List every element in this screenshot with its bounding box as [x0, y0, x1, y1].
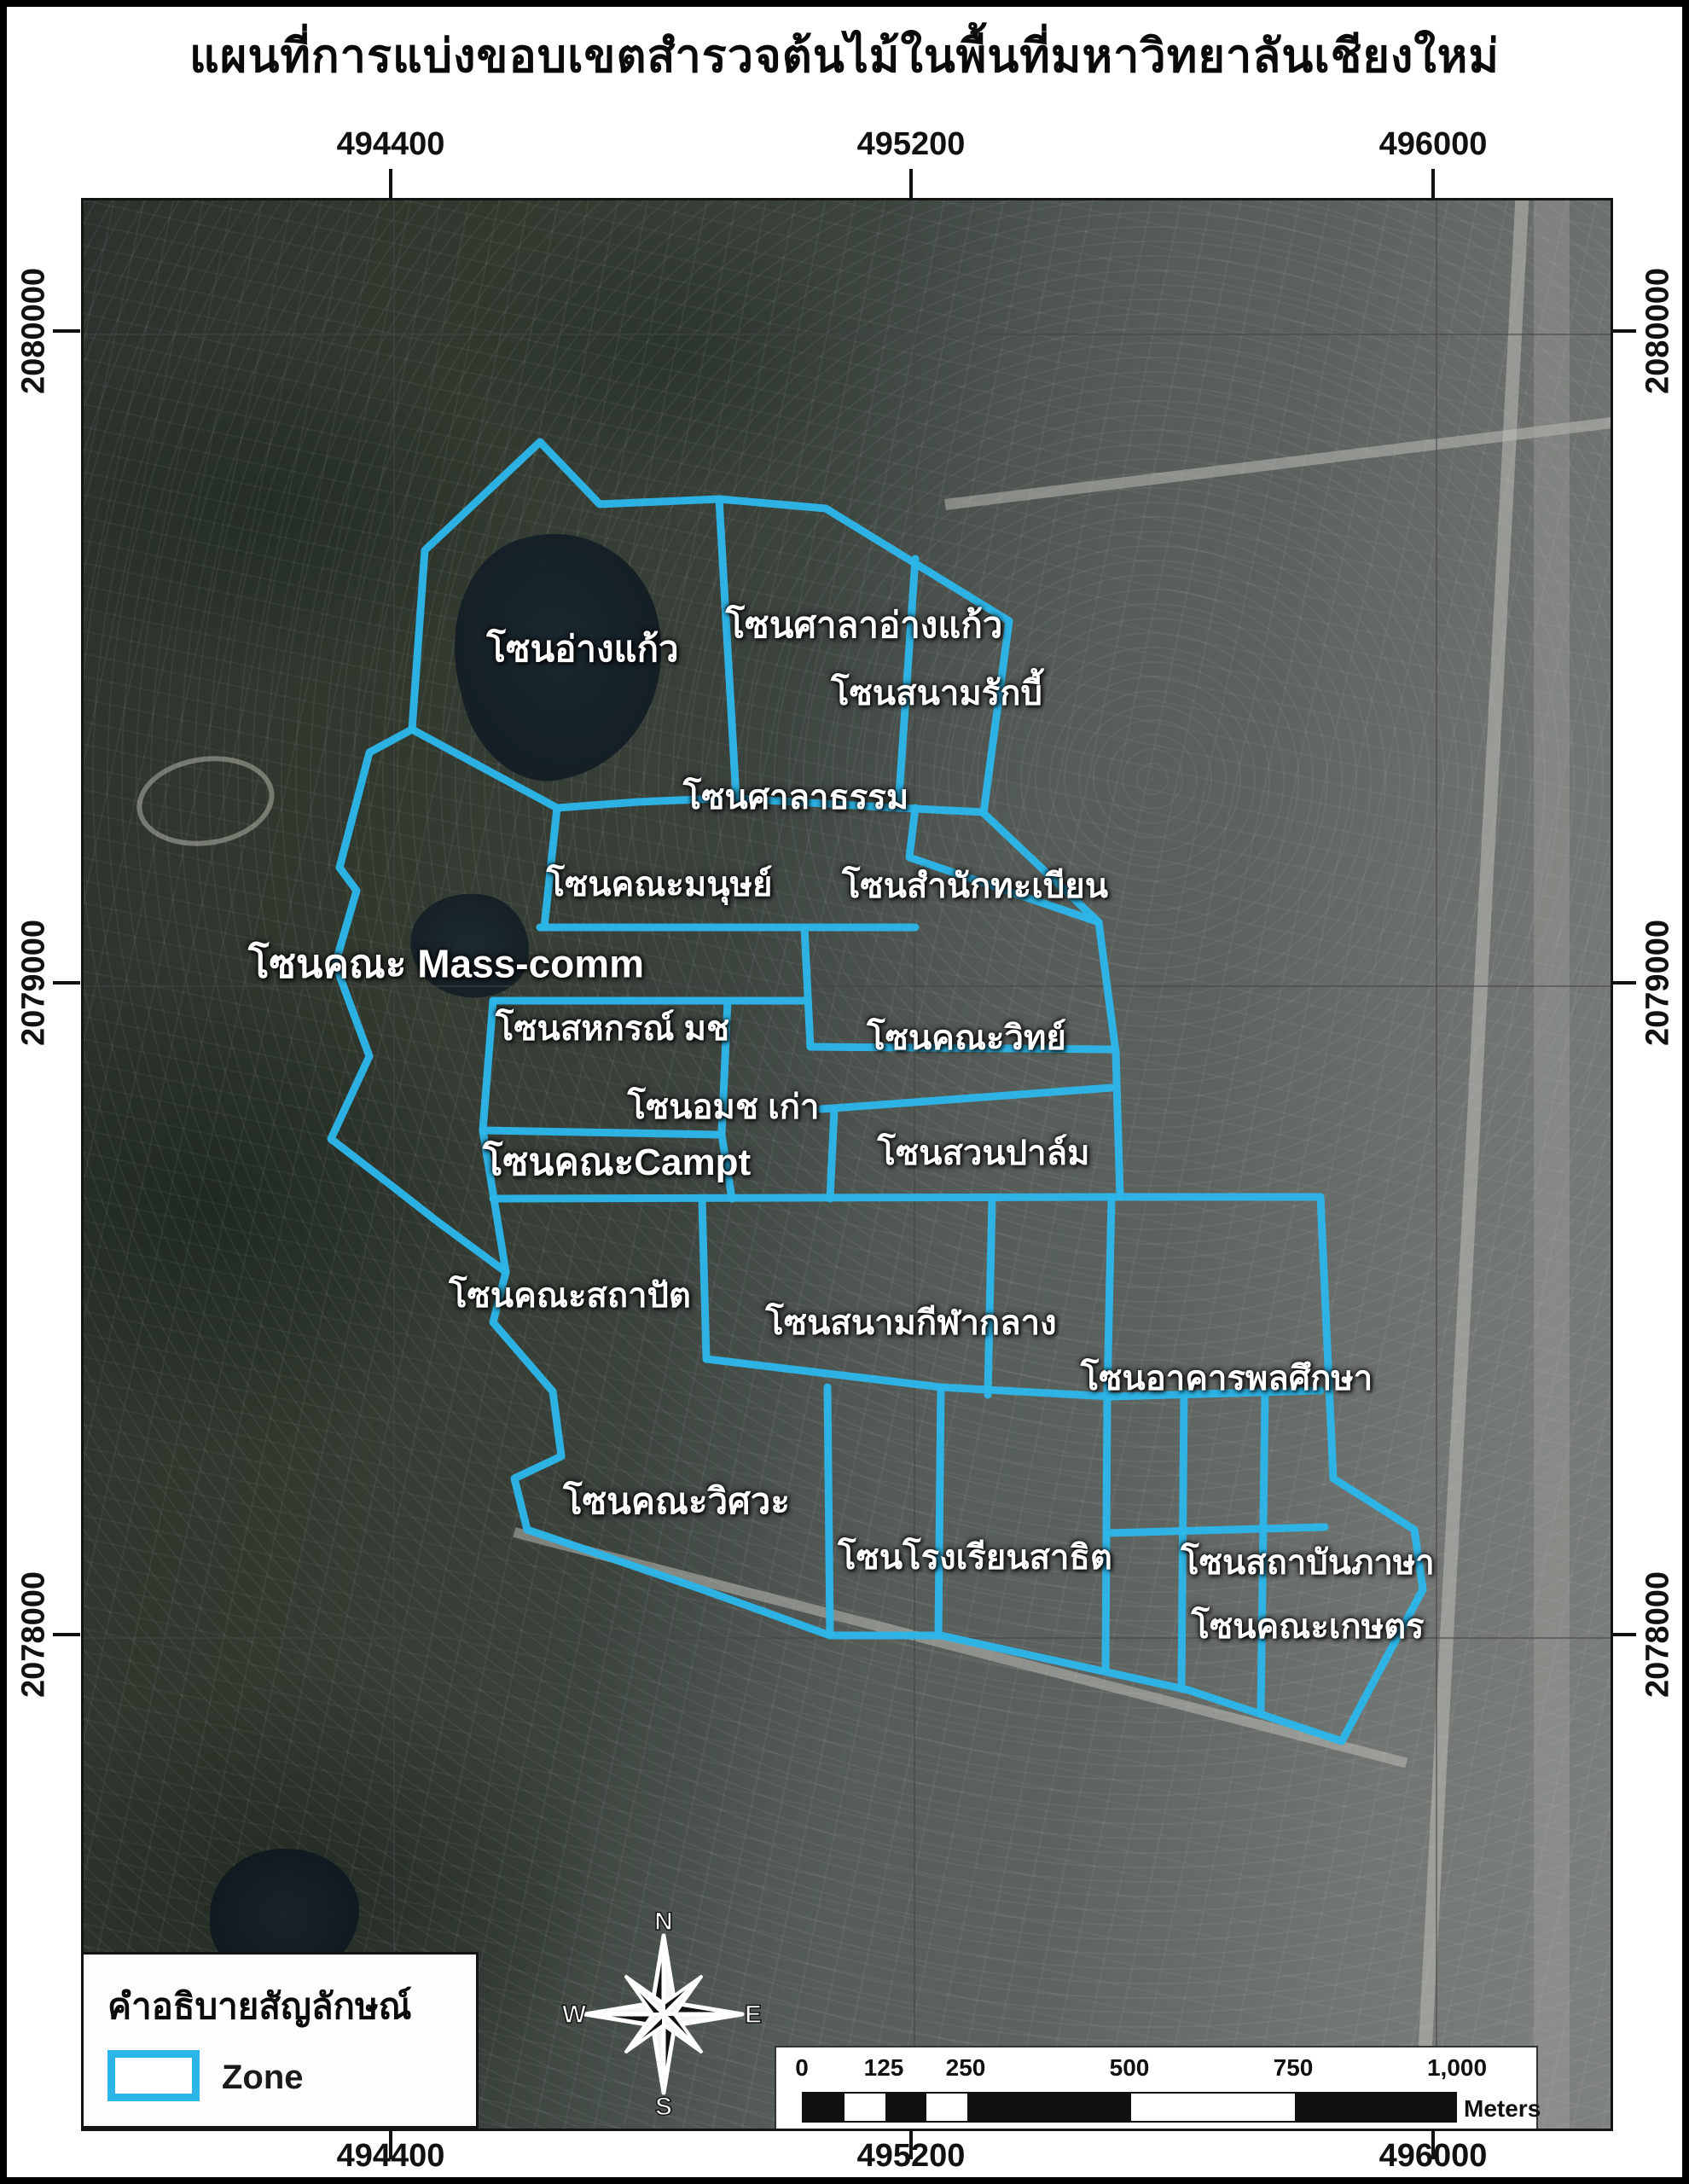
scale-label: 750 — [1274, 2054, 1314, 2082]
zone-label: โซนสนามกีฬากลาง — [765, 1295, 1056, 1350]
legend-title: คำอธิบายสัญลักษณ์ — [107, 1978, 412, 2035]
scale-label: 250 — [946, 2054, 986, 2082]
compass-e: E — [745, 2001, 762, 2029]
compass-n: N — [654, 1912, 673, 1936]
satellite-map[interactable]: โซนอ่างแก้วโซนศาลาอ่างแก้วโซนสนามรักบี้โ… — [81, 198, 1613, 2131]
scale-unit: Meters — [1464, 2095, 1541, 2123]
compass-icon: N S W E — [561, 1912, 766, 2117]
scale-bar: 0 125 250 500 750 1,000 Meters — [775, 2046, 1538, 2131]
zone-label: โซนสหกรณ์ มช — [496, 1001, 729, 1055]
zone-label: โซนคณะวิศวะ — [563, 1473, 790, 1530]
map-title: แผนที่การแบ่งขอบเขตสำรวจต้นไม้ในพื้นที่ม… — [0, 19, 1689, 92]
y-axis-label-right: 2080000 — [1640, 268, 1677, 394]
y-axis-label-left: 2079000 — [16, 920, 53, 1046]
scale-bar-segments — [802, 2092, 1457, 2123]
x-axis-label-bottom: 494400 — [337, 2138, 445, 2175]
x-axis-label-top: 496000 — [1379, 126, 1488, 163]
x-axis-label-top: 495200 — [857, 126, 966, 163]
zone-label: โซนคณะวิทย์ — [867, 1010, 1066, 1065]
y-axis-label-left: 2078000 — [16, 1571, 53, 1698]
axis-tick — [389, 169, 392, 198]
legend: คำอธิบายสัญลักษณ์ Zone — [81, 1952, 479, 2129]
y-axis-label-left: 2080000 — [16, 268, 53, 394]
zone-boundary — [493, 1197, 1120, 1199]
zone-boundary — [830, 1109, 834, 1199]
zone-label: โซนคณะCampt — [483, 1132, 751, 1192]
zone-label: โซนอ่างแก้ว — [486, 621, 678, 677]
zone-boundary — [821, 1088, 1111, 1109]
zone-boundary — [938, 1387, 941, 1635]
scale-label: 500 — [1110, 2054, 1150, 2082]
y-axis-label-right: 2079000 — [1640, 920, 1677, 1046]
scale-label: 0 — [795, 2054, 809, 2082]
x-axis-label-top: 494400 — [337, 126, 445, 163]
zone-label: โซนคณะมนุษย์ — [547, 857, 773, 911]
zone-boundary — [1106, 1197, 1111, 1670]
zone-label: โซนคณะสถาปัต — [449, 1268, 691, 1322]
zone-label: โซนโรงเรียนสาธิต — [838, 1530, 1112, 1584]
compass-s: S — [655, 2093, 672, 2117]
y-axis-label-right: 2078000 — [1640, 1571, 1677, 1698]
axis-tick — [1431, 169, 1435, 198]
axis-tick — [53, 981, 80, 985]
zone-boundary — [827, 1387, 830, 1634]
zone-boundary — [702, 1199, 706, 1359]
axis-tick — [53, 1633, 80, 1636]
zone-label: โซนคณะ Mass-comm — [248, 933, 644, 996]
zone-boundaries-layer — [84, 200, 1611, 2129]
zone-label: โซนศาลาธรรม — [683, 770, 909, 824]
zone-boundary — [412, 729, 719, 808]
zone-boundary — [804, 927, 810, 1047]
zone-boundary — [1107, 1527, 1325, 1533]
compass-rose: N S W E — [561, 1912, 766, 2117]
scale-label: 1,000 — [1427, 2054, 1487, 2082]
zone-label: โซนศาลาอ่างแก้ว — [726, 597, 1003, 653]
axis-tick — [909, 169, 913, 198]
zone-swatch — [107, 2050, 200, 2101]
zone-label: โซนสถาบันภาษา — [1181, 1535, 1434, 1589]
zone-label: โซนสนามรักบี้ — [831, 665, 1042, 720]
scale-label: 125 — [864, 2054, 904, 2082]
zone-label: โซนสวนปาล์ม — [878, 1125, 1090, 1180]
axis-tick — [53, 329, 80, 333]
legend-item-label: Zone — [222, 2059, 304, 2097]
x-axis-label-bottom: 496000 — [1379, 2138, 1488, 2175]
zone-label: โซนสำนักทะเบียน — [842, 858, 1108, 913]
zone-label: โซนอาคารพลศึกษา — [1081, 1350, 1373, 1405]
compass-w: W — [562, 2001, 587, 2029]
zone-label: โซนอมช เก่า — [628, 1079, 820, 1134]
x-axis-label-bottom: 495200 — [857, 2138, 966, 2175]
zone-label: โซนคณะเกษตร — [1191, 1599, 1424, 1653]
zone-boundary — [706, 1359, 1111, 1397]
